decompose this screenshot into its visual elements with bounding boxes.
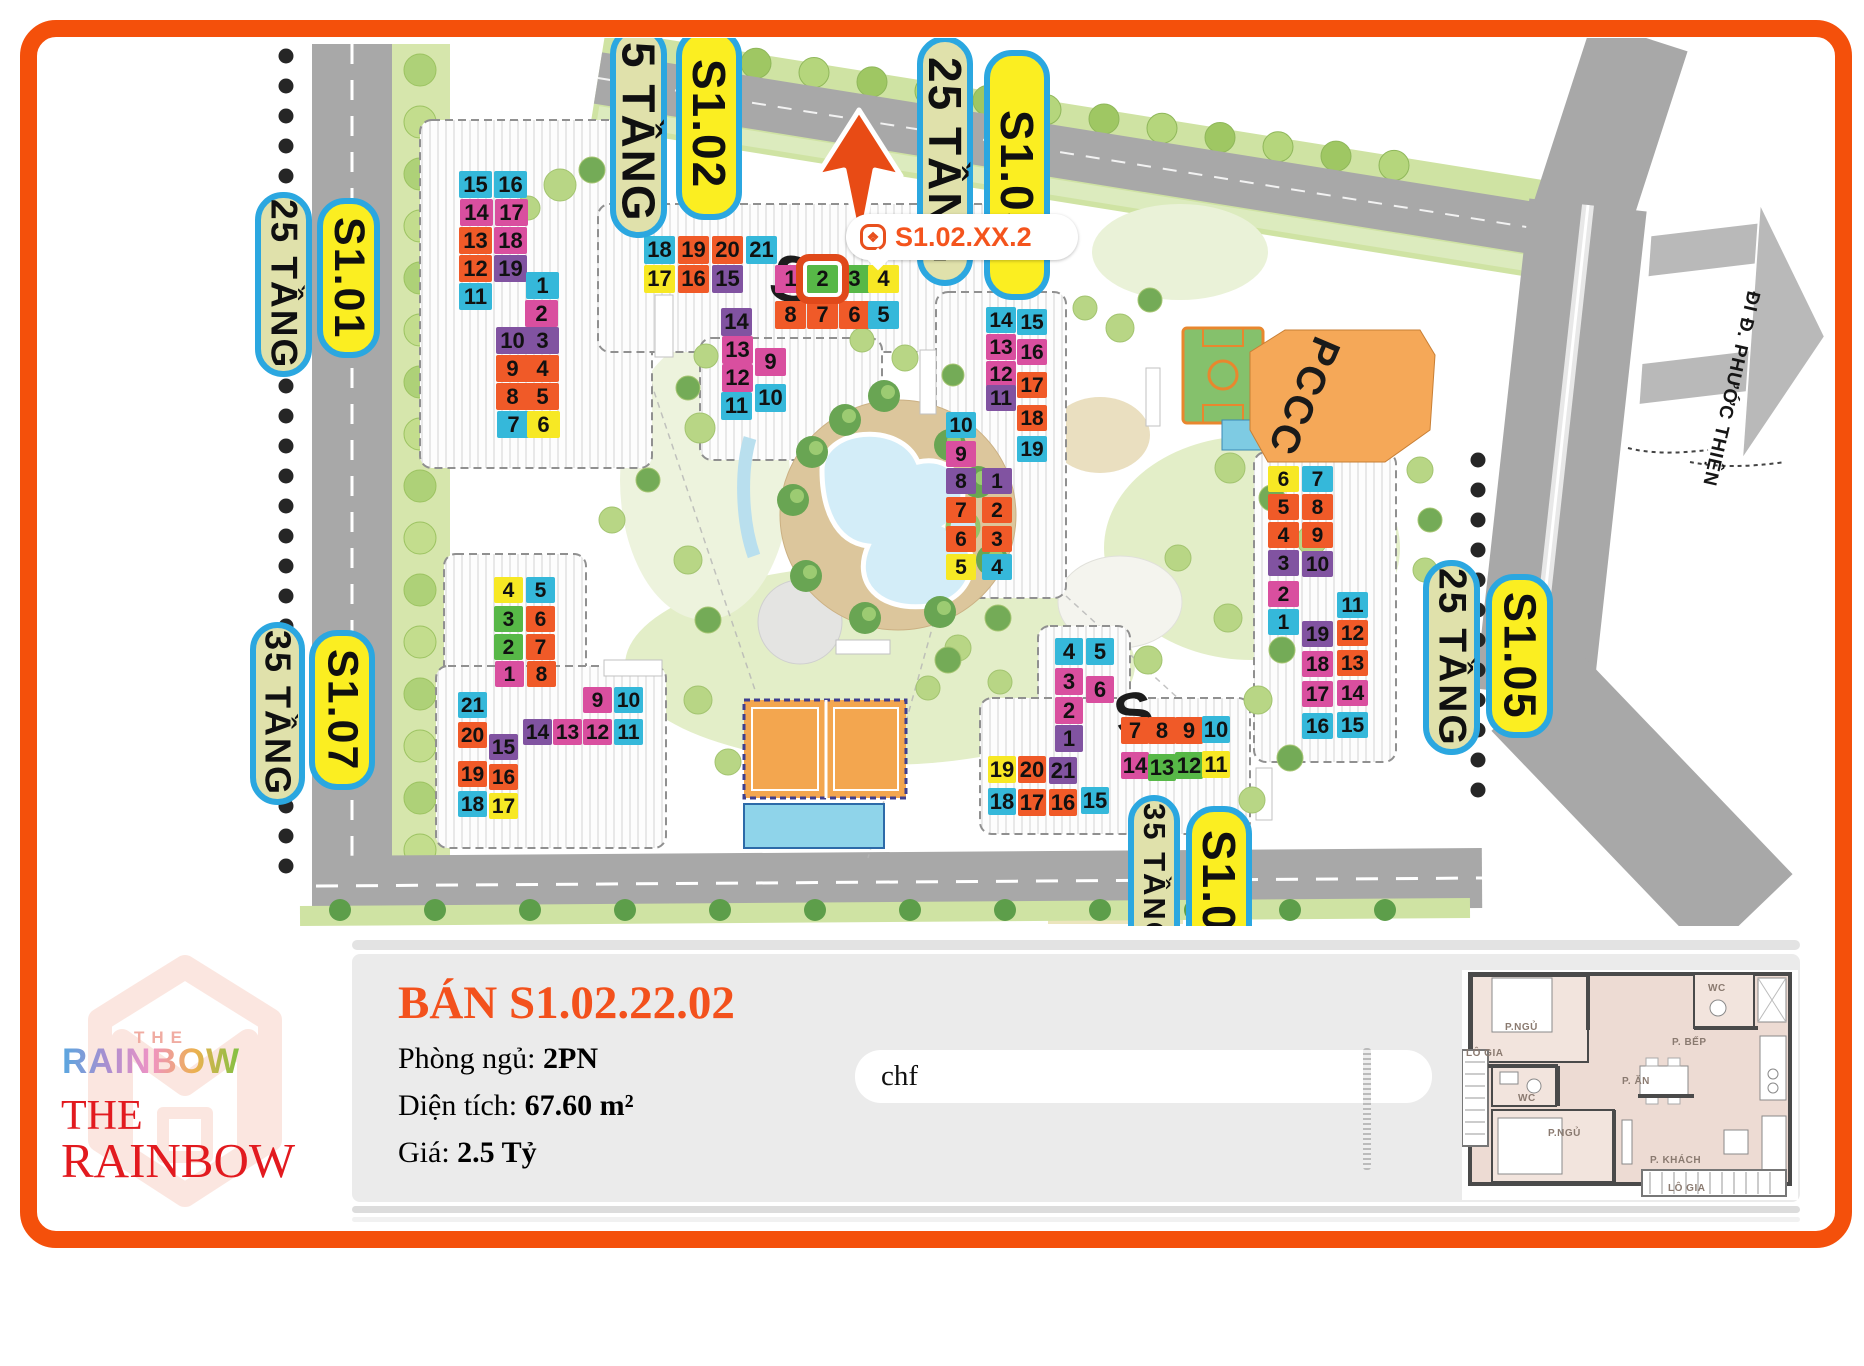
unit-cell-S1.03-7[interactable]: 7 bbox=[946, 497, 976, 523]
unit-cell-S1.07-6[interactable]: 6 bbox=[526, 606, 555, 632]
unit-cell-S1.05-11[interactable]: 11 bbox=[1337, 592, 1368, 618]
unit-cell-S1.07-18[interactable]: 18 bbox=[458, 791, 487, 817]
unit-cell-S1.04-5[interactable]: 5 bbox=[1086, 638, 1114, 665]
panel-bottom-strip bbox=[352, 1206, 1800, 1213]
unit-cell-S1.03-8[interactable]: 8 bbox=[946, 468, 976, 494]
unit-cell-S1.04-6[interactable]: 6 bbox=[1086, 676, 1114, 703]
unit-cell-S1.07-8[interactable]: 8 bbox=[527, 661, 556, 687]
unit-cell-S1.03-2[interactable]: 2 bbox=[982, 497, 1012, 523]
map-label-S1.01: S1.01 bbox=[317, 198, 380, 358]
unit-cell-S1.03-3[interactable]: 3 bbox=[982, 526, 1012, 552]
unit-cell-S1.05-16[interactable]: 16 bbox=[1302, 713, 1333, 739]
listing-field: Diện tích: 67.60 m² bbox=[398, 1089, 634, 1123]
unit-cell-S1.03-13[interactable]: 13 bbox=[986, 334, 1016, 360]
unit-cell-S1.02-19[interactable]: 19 bbox=[678, 236, 709, 264]
panel-scrollbar[interactable] bbox=[1363, 1048, 1371, 1170]
unit-cell-S1.03-6[interactable]: 6 bbox=[946, 526, 976, 552]
unit-cell-S1.05-10[interactable]: 10 bbox=[1302, 551, 1333, 577]
unit-cell-S1.04-9[interactable]: 9 bbox=[1175, 717, 1203, 744]
room-label: P. ĂN bbox=[1622, 1076, 1650, 1087]
room-label: P.NGỦ bbox=[1505, 1022, 1538, 1033]
room-label: LÔ GIA bbox=[1668, 1183, 1705, 1194]
unit-cell-S1.04-17[interactable]: 17 bbox=[1018, 789, 1046, 816]
field-value: 2PN bbox=[543, 1042, 598, 1075]
page: PCCC S S ĐI Đ. PH bbox=[0, 0, 1864, 1366]
unit-cell-S1.01-16[interactable]: 16 bbox=[494, 171, 527, 198]
unit-cell-S1.01-13[interactable]: 13 bbox=[459, 227, 492, 254]
unit-cell-S1.01-18[interactable]: 18 bbox=[494, 227, 527, 254]
unit-cell-S1.01-6[interactable]: 6 bbox=[527, 411, 560, 438]
unit-cell-S1.04-18[interactable]: 18 bbox=[988, 788, 1016, 815]
unit-cell-S1.05-7[interactable]: 7 bbox=[1302, 466, 1333, 492]
room-label: P.NGỦ bbox=[1548, 1128, 1581, 1139]
logo-rainbow-gradient: RAINBOW bbox=[62, 1042, 240, 1082]
unit-cell-S1.01-4[interactable]: 4 bbox=[526, 355, 559, 382]
site-map: PCCC S S ĐI Đ. PH bbox=[36, 38, 1828, 926]
unit-cell-S1.05-3[interactable]: 3 bbox=[1268, 550, 1299, 576]
unit-cell-S1.03-12[interactable]: 12 bbox=[986, 361, 1016, 387]
unit-cell-S1.07-15[interactable]: 15 bbox=[489, 734, 518, 760]
field-value: 2.5 Tỷ bbox=[457, 1136, 536, 1169]
unit-cell-S1.01-19[interactable]: 19 bbox=[494, 255, 527, 282]
map-label-S1.07: S1.07 bbox=[309, 630, 375, 790]
unit-cell-S1.04-11[interactable]: 11 bbox=[1202, 751, 1230, 778]
unit-cell-S1.01-1[interactable]: 1 bbox=[526, 272, 559, 299]
unit-cell-S1.01-8[interactable]: 8 bbox=[496, 383, 529, 410]
unit-cell-S1.02-20[interactable]: 20 bbox=[712, 236, 743, 264]
map-label-S1.0: S1.0 bbox=[1186, 806, 1252, 926]
map-label-35-TẦNG: 35 TẦNG bbox=[1128, 795, 1180, 926]
selected-unit-callout: ❖ S1.02.XX.2 bbox=[846, 214, 1078, 260]
field-label: Phòng ngủ: bbox=[398, 1042, 543, 1075]
unit-cell-S1.04-4[interactable]: 4 bbox=[1055, 638, 1083, 665]
unit-cell-S1.02-13[interactable]: 13 bbox=[722, 336, 753, 364]
room-label: WC bbox=[1708, 983, 1726, 994]
rainbow-badge-icon: ❖ bbox=[860, 224, 886, 250]
unit-cell-S1.05-17[interactable]: 17 bbox=[1302, 681, 1333, 707]
callout-text: S1.02.XX.2 bbox=[895, 222, 1032, 253]
unit-cell-S1.03-1[interactable]: 1 bbox=[982, 468, 1012, 494]
panel-bottom-strip-2 bbox=[352, 1217, 1800, 1222]
unit-cell-S1.02-10[interactable]: 10 bbox=[755, 384, 786, 412]
map-label-25-TẦNG: 25 TẦNG bbox=[255, 192, 312, 377]
unit-cell-S1.05-14[interactable]: 14 bbox=[1337, 680, 1368, 706]
unit-cell-S1.07-7[interactable]: 7 bbox=[526, 634, 555, 660]
unit-cell-S1.07-2[interactable]: 2 bbox=[494, 634, 523, 660]
unit-cell-S1.01-10[interactable]: 10 bbox=[496, 327, 529, 354]
unit-cell-S1.02-16[interactable]: 16 bbox=[678, 265, 709, 293]
map-label-S1.02: S1.02 bbox=[676, 38, 742, 220]
listing-fields: Phòng ngủ: 2PNDiện tích: 67.60 m²Giá: 2.… bbox=[398, 1042, 634, 1183]
unit-cell-S1.07-1[interactable]: 1 bbox=[495, 661, 524, 687]
unit-cell-S1.01-9[interactable]: 9 bbox=[496, 355, 529, 382]
unit-cell-S1.07-21[interactable]: 21 bbox=[458, 692, 487, 718]
unit-cell-S1.07-19[interactable]: 19 bbox=[458, 761, 487, 787]
listing-field: Phòng ngủ: 2PN bbox=[398, 1042, 634, 1076]
room-label: P. BẾP bbox=[1672, 1037, 1707, 1048]
unit-cell-S1.05-8[interactable]: 8 bbox=[1302, 494, 1333, 520]
unit-cell-S1.01-17[interactable]: 17 bbox=[495, 199, 528, 226]
unit-cell-S1.02-11[interactable]: 11 bbox=[721, 392, 752, 420]
unit-cell-S1.07-17[interactable]: 17 bbox=[489, 793, 518, 819]
unit-cell-S1.07-5[interactable]: 5 bbox=[526, 577, 555, 603]
unit-cell-S1.02-14[interactable]: 14 bbox=[721, 308, 752, 336]
field-value: 67.60 m² bbox=[525, 1089, 634, 1122]
unit-cell-S1.04-12[interactable]: 12 bbox=[1175, 752, 1203, 779]
unit-cell-S1.05-19[interactable]: 19 bbox=[1302, 621, 1333, 647]
unit-cell-S1.03-16[interactable]: 16 bbox=[1017, 339, 1047, 365]
unit-cell-S1.02-15[interactable]: 15 bbox=[712, 265, 743, 293]
map-label-5-TẦNG: 5 TẦNG bbox=[610, 38, 667, 238]
selection-arrow-icon bbox=[776, 96, 916, 296]
unit-cell-S1.01-5[interactable]: 5 bbox=[526, 383, 559, 410]
unit-cell-S1.07-12[interactable]: 12 bbox=[583, 719, 612, 745]
unit-cell-S1.02-18[interactable]: 18 bbox=[644, 236, 675, 264]
unit-cell-S1.03-4[interactable]: 4 bbox=[982, 554, 1012, 580]
unit-cell-S1.02-5[interactable]: 5 bbox=[868, 301, 899, 329]
floorplan-image: P.NGỦWCP. BẾPLÔ GIAP. ĂNWCP.NGỦP. KHÁCHL… bbox=[1462, 970, 1798, 1200]
unit-cell-S1.01-14[interactable]: 14 bbox=[460, 199, 493, 226]
unit-cell-S1.03-10[interactable]: 10 bbox=[946, 412, 976, 438]
unit-cell-S1.01-2[interactable]: 2 bbox=[525, 300, 558, 327]
unit-cell-S1.04-7[interactable]: 7 bbox=[1121, 717, 1149, 744]
field-label: Diện tích: bbox=[398, 1089, 525, 1122]
unit-cell-S1.04-14[interactable]: 14 bbox=[1121, 752, 1149, 779]
unit-cell-S1.03-19[interactable]: 19 bbox=[1017, 436, 1047, 462]
search-input[interactable] bbox=[855, 1050, 1432, 1103]
unit-cell-S1.01-15[interactable]: 15 bbox=[459, 171, 492, 198]
unit-cell-S1.02-9[interactable]: 9 bbox=[755, 348, 786, 376]
unit-cell-S1.01-3[interactable]: 3 bbox=[526, 327, 559, 354]
unit-cell-S1.03-14[interactable]: 14 bbox=[986, 307, 1016, 333]
unit-cell-S1.02-8[interactable]: 8 bbox=[775, 301, 806, 329]
unit-cell-S1.05-6[interactable]: 6 bbox=[1268, 466, 1299, 492]
unit-cell-S1.04-20[interactable]: 20 bbox=[1018, 756, 1046, 783]
unit-cell-S1.04-19[interactable]: 19 bbox=[988, 756, 1016, 783]
room-label: WC bbox=[1518, 1093, 1536, 1104]
unit-cell-S1.04-3[interactable]: 3 bbox=[1055, 668, 1083, 695]
unit-cell-S1.05-1[interactable]: 1 bbox=[1268, 609, 1299, 635]
listing-title: BÁN S1.02.22.02 bbox=[398, 976, 735, 1030]
unit-cell-S1.02-21[interactable]: 21 bbox=[746, 236, 777, 264]
unit-cell-S1.05-9[interactable]: 9 bbox=[1302, 522, 1333, 548]
room-label: LÔ GIA bbox=[1466, 1048, 1503, 1059]
unit-cell-S1.02-17[interactable]: 17 bbox=[644, 265, 675, 293]
unit-cell-S1.03-11[interactable]: 11 bbox=[986, 385, 1016, 411]
unit-cell-S1.01-12[interactable]: 12 bbox=[459, 255, 492, 282]
listing-field: Giá: 2.5 Tỷ bbox=[398, 1136, 634, 1170]
map-label-35-TẦNG: 35 TẦNG bbox=[250, 622, 305, 805]
unit-cell-S1.04-1[interactable]: 1 bbox=[1055, 725, 1083, 752]
unit-cell-S1.03-9[interactable]: 9 bbox=[946, 441, 976, 467]
panel-top-strip bbox=[352, 940, 1800, 950]
unit-cell-S1.07-16[interactable]: 16 bbox=[489, 764, 518, 790]
unit-cell-S1.05-13[interactable]: 13 bbox=[1337, 650, 1368, 676]
unit-cell-S1.07-10[interactable]: 10 bbox=[614, 687, 643, 713]
unit-cell-S1.07-20[interactable]: 20 bbox=[458, 722, 487, 748]
unit-cell-S1.07-13[interactable]: 13 bbox=[553, 719, 582, 745]
unit-cell-S1.04-8[interactable]: 8 bbox=[1148, 717, 1176, 744]
map-label-S1.03: S1.03 bbox=[984, 50, 1050, 300]
map-overlays: 1516141713181219111210394857618192021171… bbox=[36, 38, 1828, 926]
unit-cell-S1.03-18[interactable]: 18 bbox=[1017, 405, 1047, 431]
map-label-25-TẦNG: 25 TẦNG bbox=[1423, 560, 1480, 755]
unit-cell-S1.05-18[interactable]: 18 bbox=[1302, 651, 1333, 677]
unit-cell-S1.05-2[interactable]: 2 bbox=[1268, 581, 1299, 607]
unit-cell-S1.04-10[interactable]: 10 bbox=[1202, 716, 1230, 743]
room-label: P. KHÁCH bbox=[1650, 1155, 1701, 1166]
unit-cell-S1.07-9[interactable]: 9 bbox=[583, 687, 612, 713]
unit-cell-S1.07-14[interactable]: 14 bbox=[523, 719, 552, 745]
unit-cell-S1.01-7[interactable]: 7 bbox=[497, 411, 530, 438]
unit-cell-S1.03-5[interactable]: 5 bbox=[946, 554, 976, 580]
unit-cell-S1.03-15[interactable]: 15 bbox=[1017, 309, 1047, 335]
unit-cell-S1.04-21[interactable]: 21 bbox=[1049, 757, 1077, 784]
unit-cell-S1.01-11[interactable]: 11 bbox=[459, 283, 492, 310]
unit-cell-S1.05-12[interactable]: 12 bbox=[1337, 620, 1368, 646]
field-label: Giá: bbox=[398, 1136, 457, 1169]
unit-cell-S1.05-5[interactable]: 5 bbox=[1268, 494, 1299, 520]
unit-cell-S1.03-17[interactable]: 17 bbox=[1017, 372, 1047, 398]
unit-cell-S1.04-15[interactable]: 15 bbox=[1081, 787, 1109, 814]
unit-cell-S1.05-15[interactable]: 15 bbox=[1337, 712, 1368, 738]
logo-rainbow-red: RAINBOW bbox=[61, 1132, 295, 1189]
unit-cell-S1.04-13[interactable]: 13 bbox=[1148, 754, 1176, 781]
unit-cell-S1.05-4[interactable]: 4 bbox=[1268, 522, 1299, 548]
unit-cell-S1.02-12[interactable]: 12 bbox=[722, 364, 753, 392]
unit-cell-S1.07-3[interactable]: 3 bbox=[494, 606, 523, 632]
unit-cell-S1.07-11[interactable]: 11 bbox=[614, 719, 643, 745]
unit-cell-S1.07-4[interactable]: 4 bbox=[494, 577, 523, 603]
unit-cell-S1.02-6[interactable]: 6 bbox=[839, 301, 870, 329]
map-label-S1.05: S1.05 bbox=[1486, 574, 1553, 738]
unit-cell-S1.04-2[interactable]: 2 bbox=[1055, 697, 1083, 724]
unit-cell-S1.04-16[interactable]: 16 bbox=[1049, 789, 1077, 816]
unit-cell-S1.02-7[interactable]: 7 bbox=[807, 301, 838, 329]
